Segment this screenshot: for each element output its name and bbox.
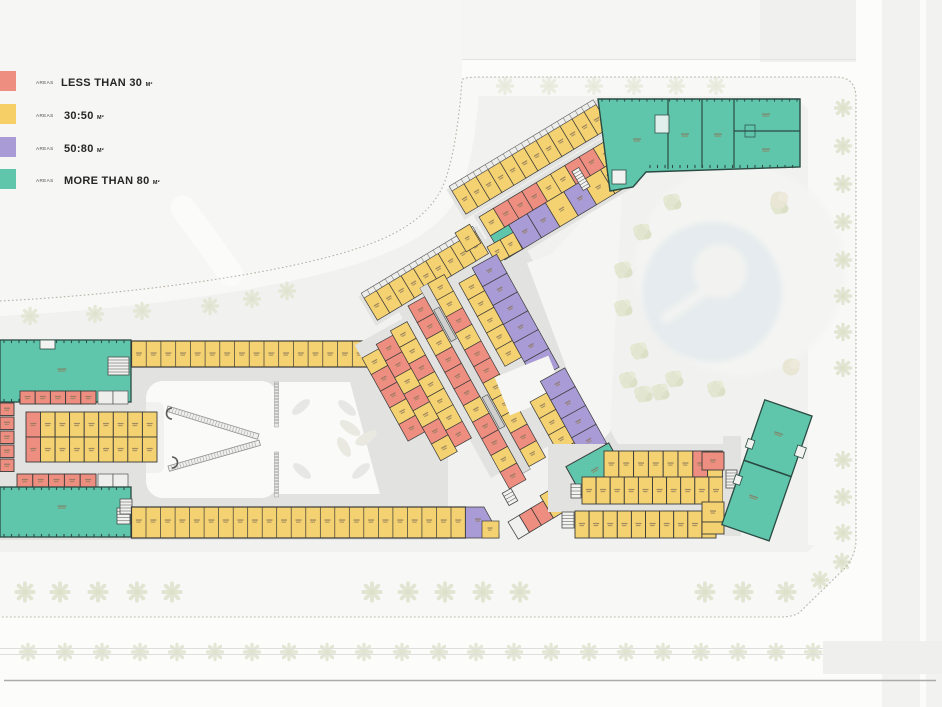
- svg-text:MORE THAN 80 M²: MORE THAN 80 M²: [64, 175, 160, 187]
- svg-text:LESS THAN 30 M²: LESS THAN 30 M²: [61, 77, 153, 89]
- svg-text:AREAS: AREAS: [36, 146, 54, 151]
- svg-text:AREAS: AREAS: [36, 178, 54, 183]
- svg-text:AREAS: AREAS: [36, 113, 54, 118]
- svg-text:AREAS: AREAS: [36, 80, 54, 85]
